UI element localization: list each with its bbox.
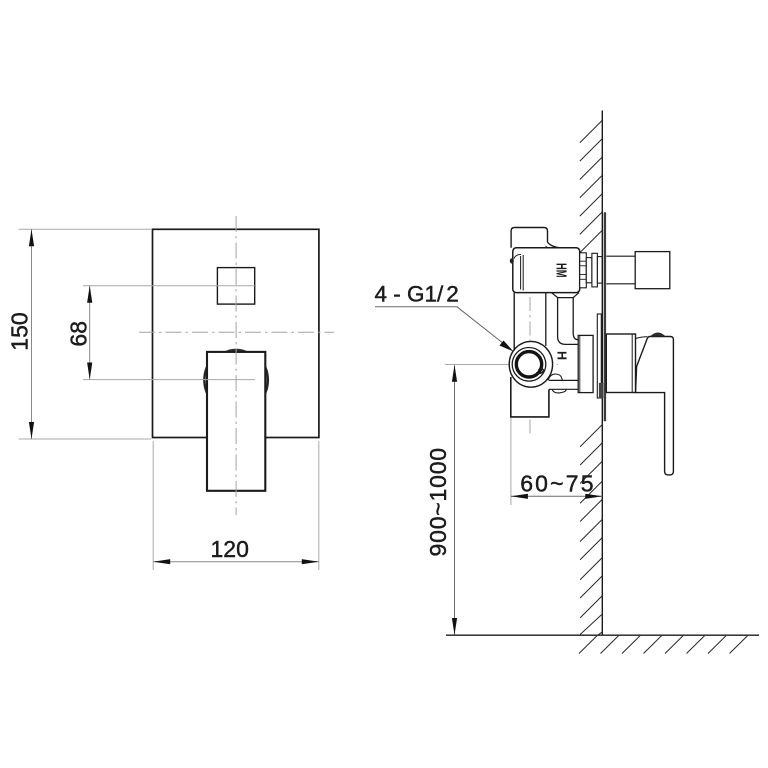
svg-text:150: 150 [6,312,32,350]
svg-text:HM: HM [553,263,570,278]
svg-text:H: H [555,351,569,360]
svg-text:120: 120 [211,536,249,562]
svg-text:900~1000: 900~1000 [425,447,451,556]
svg-text:68: 68 [65,321,91,347]
svg-text:4 - G1/2: 4 - G1/2 [375,282,459,307]
svg-text:60~75: 60~75 [520,471,596,497]
